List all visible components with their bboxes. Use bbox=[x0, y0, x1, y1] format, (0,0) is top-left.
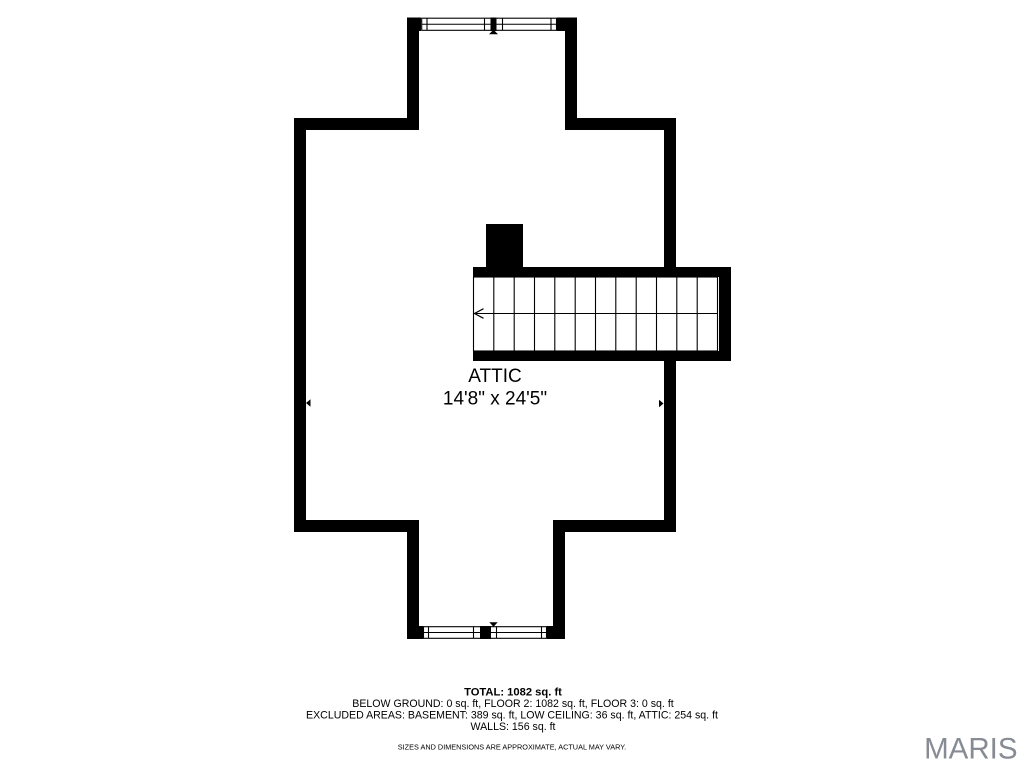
svg-text:SIZES AND DIMENSIONS ARE APPRO: SIZES AND DIMENSIONS ARE APPROXIMATE, AC… bbox=[398, 743, 626, 752]
svg-text:EXCLUDED AREAS: BASEMENT: 389: EXCLUDED AREAS: BASEMENT: 389 sq. ft, LO… bbox=[306, 710, 718, 722]
svg-text:BELOW GROUND: 0 sq. ft, FLOOR: BELOW GROUND: 0 sq. ft, FLOOR 2: 1082 sq… bbox=[352, 698, 674, 710]
svg-text:TOTAL: 1082 sq. ft: TOTAL: 1082 sq. ft bbox=[464, 687, 562, 699]
svg-text:14'8" x 24'5": 14'8" x 24'5" bbox=[443, 389, 547, 410]
svg-text:MARIS: MARIS bbox=[924, 733, 1017, 766]
svg-text:ATTIC: ATTIC bbox=[468, 366, 521, 387]
svg-text:WALLS: 156 sq. ft: WALLS: 156 sq. ft bbox=[471, 721, 556, 733]
